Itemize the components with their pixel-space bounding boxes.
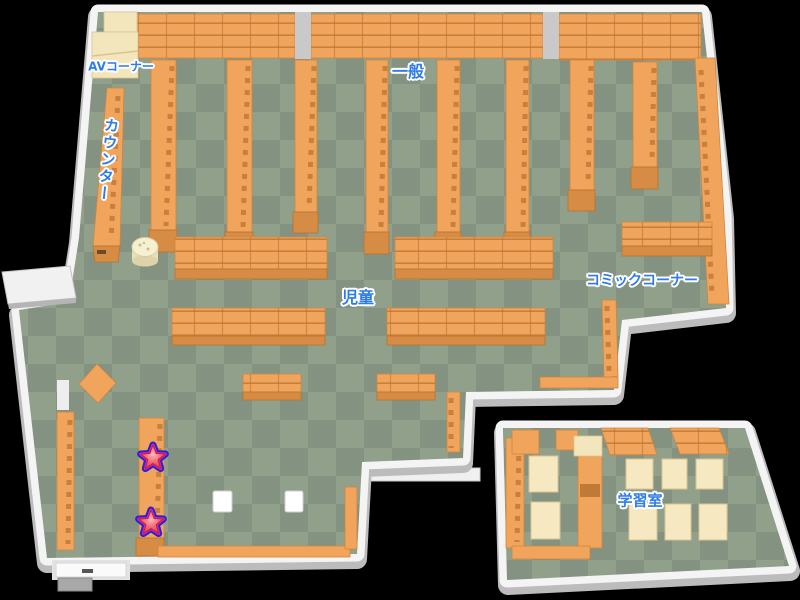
study-table	[699, 504, 727, 540]
study-table	[665, 504, 691, 540]
bookshelf	[225, 60, 253, 254]
entrance	[52, 560, 130, 591]
stool	[285, 491, 303, 512]
bookshelf	[149, 60, 177, 252]
low-shelf	[622, 222, 712, 256]
door-handle-icon	[82, 569, 93, 573]
low-shelf	[175, 237, 327, 279]
library-floor-map: AVコーナー カウンター 一般 児童 コミックコーナー 学習室	[0, 0, 800, 600]
label-comic-corner: コミックコーナー	[586, 270, 698, 290]
wall-shelves-top	[137, 12, 701, 60]
low-shelf	[243, 374, 301, 400]
wall-shelf	[158, 546, 350, 557]
pillar	[543, 12, 559, 59]
label-children: 児童	[342, 284, 374, 308]
wall-shelf	[512, 546, 590, 559]
pillar	[295, 12, 311, 59]
cylinder-stand	[132, 238, 158, 267]
wall-shelf	[512, 430, 539, 454]
floor-map-canvas	[0, 0, 800, 600]
stool	[213, 491, 232, 512]
return-slot-icon	[97, 250, 106, 254]
bookshelf	[504, 60, 530, 254]
bookshelf	[435, 60, 461, 254]
label-av-corner: AVコーナー	[88, 58, 154, 75]
low-shelf	[172, 308, 325, 345]
divider-shelf	[574, 436, 602, 548]
wall-shelf	[345, 487, 357, 549]
low-shelf	[377, 374, 435, 400]
bookshelf	[506, 438, 524, 548]
wall-shelf	[670, 428, 729, 454]
left-wall-block	[2, 266, 76, 309]
low-shelf	[395, 237, 553, 279]
bookshelf	[57, 412, 74, 550]
wall-stub	[57, 380, 69, 410]
bookshelf	[447, 392, 460, 452]
label-general: 一般	[392, 58, 424, 82]
bookshelf	[602, 300, 618, 378]
label-study-room: 学習室	[617, 490, 662, 511]
bookshelf	[631, 62, 658, 189]
bookshelf	[364, 60, 389, 254]
wall-shelf	[540, 377, 618, 388]
study-table	[529, 456, 558, 492]
wall-shelf	[601, 428, 657, 455]
study-table	[662, 459, 687, 489]
bookshelf	[568, 60, 595, 211]
study-table	[531, 502, 560, 539]
bookshelf	[293, 60, 318, 233]
study-table	[626, 459, 653, 489]
low-shelf	[387, 308, 545, 345]
study-table	[696, 459, 723, 489]
